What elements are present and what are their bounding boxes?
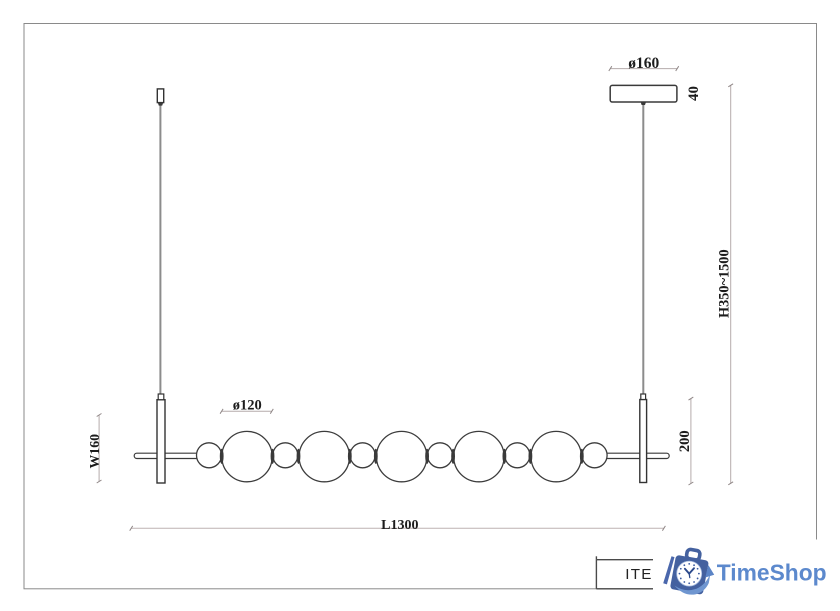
svg-text:H350~1500: H350~1500 bbox=[717, 249, 733, 318]
svg-text:W160: W160 bbox=[87, 434, 102, 469]
svg-text:L1300: L1300 bbox=[381, 518, 418, 533]
svg-text:ø160: ø160 bbox=[628, 55, 659, 72]
svg-text:40: 40 bbox=[686, 86, 702, 101]
svg-text:200: 200 bbox=[677, 430, 693, 452]
svg-text:ø120: ø120 bbox=[233, 398, 262, 414]
svg-text:TimeShop: TimeShop bbox=[717, 559, 827, 585]
